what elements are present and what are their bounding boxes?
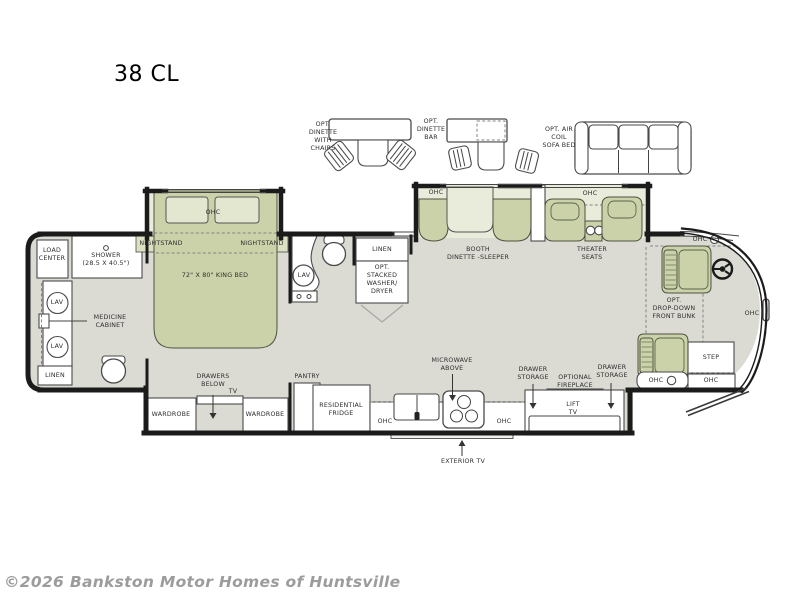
pantry-label: PANTRY: [294, 373, 319, 381]
load-center-label: LOAD CENTER: [39, 247, 66, 263]
lift-tv-label: LIFT TV: [566, 401, 580, 417]
shower-label: SHOWER (28.5 X 40.5"): [83, 252, 130, 268]
opt-dinette-bar-label: OPT. DINETTE BAR: [417, 118, 445, 142]
opt-sofa-label: OPT. AIR COIL SOFA BED: [542, 126, 575, 150]
medicine-cabinet-label: MEDICINE CABINET: [94, 314, 127, 330]
passenger-seat: [638, 334, 688, 377]
bar-chair-left: [448, 145, 472, 171]
drawer-storage-label-right: DRAWER STORAGE: [596, 364, 627, 380]
ohc-label-front-bottom-left: OHC: [649, 377, 664, 385]
slide-divider: [531, 185, 545, 241]
cupholder-1: [586, 226, 595, 235]
floorplan-page: 38 CL OPT. DINETTE WITH CHAIRS OPT. DINE…: [0, 0, 800, 600]
ohc-label-dinette-1: OHC: [429, 189, 444, 197]
microwave-label: MICROWAVE ABOVE: [432, 357, 473, 373]
sofa-back-cushion-2: [619, 125, 648, 149]
sofa-back-cushion-1: [589, 125, 618, 149]
booth-table: [447, 187, 493, 232]
wardrobe-label-left: WARDROBE: [152, 411, 191, 419]
linen-label-mid: LINEN: [372, 246, 392, 254]
bar-chair-right: [515, 148, 540, 174]
ohc-light-bottom: [667, 376, 675, 384]
lav-label-2: LAV: [51, 343, 63, 351]
drop-down-bunk-label: OPT. DROP-DOWN FRONT BUNK: [652, 297, 695, 321]
opt-dinette-chairs-label: OPT. DINETTE WITH CHAIRS: [309, 121, 337, 153]
bar-pedestal: [478, 142, 504, 170]
fridge-label: RESIDENTIAL FRIDGE: [319, 402, 362, 418]
toilet-rear: [102, 359, 126, 383]
booth-dinette-label: BOOTH DINETTE -SLEEPER: [447, 246, 509, 262]
theater-seat-right: [602, 197, 642, 241]
nightstand-label-right: NIGHTSTAND: [240, 240, 283, 248]
page-title: 38 CL: [114, 62, 179, 87]
ohc-label-bed: OHC: [206, 209, 221, 217]
lift-tv-screen: [529, 416, 620, 433]
opt-sofa-drawing: [575, 122, 691, 174]
driver-seat: [662, 246, 711, 293]
medicine-cabinet-box: [39, 314, 49, 328]
toilet-mid: [323, 243, 346, 266]
exterior-tv-label: EXTERIOR TV: [441, 458, 485, 466]
midbath-vanity-base: [292, 291, 317, 302]
ohc-label-front-top: OHC: [693, 236, 708, 244]
tv-cabinet-bedroom: [197, 396, 243, 404]
pillow-left: [166, 197, 208, 223]
king-bed-label: 72" X 80" KING BED: [182, 272, 248, 280]
step-label: STEP: [703, 354, 719, 362]
sofa-back-cushion-3: [649, 125, 678, 149]
sofa-arm-right: [678, 122, 691, 174]
theater-seats-label: THEATER SEATS: [577, 246, 607, 262]
tv-label: TV: [229, 388, 238, 396]
lav-label-3: LAV: [298, 272, 310, 280]
watermark: ©2026 Bankston Motor Homes of Huntsville: [4, 573, 400, 591]
booth-bench-left: [419, 199, 448, 241]
lav-label-1: LAV: [51, 299, 63, 307]
faucet: [415, 412, 420, 420]
sofa-arm-left: [575, 122, 588, 174]
fireplace-label: OPTIONAL FIREPLACE: [557, 374, 593, 390]
pillow-right: [215, 197, 259, 223]
ohc-label-windshield: OHC: [745, 310, 760, 318]
ohc-label-front-bottom-right: OHC: [704, 377, 719, 385]
booth-bench-right: [493, 199, 531, 241]
nightstand-label-left: NIGHTSTAND: [139, 240, 182, 248]
drawers-below-label: DRAWERS BELOW: [197, 373, 230, 389]
linen-label-rear: LINEN: [45, 372, 65, 380]
ohc-label-dinette-2: OHC: [583, 190, 598, 198]
drawer-storage-label-left: DRAWER STORAGE: [517, 366, 548, 382]
washer-dryer-label: OPT. STACKED WASHER/ DRYER: [367, 264, 398, 296]
ohc-label-kitchen-right: OHC: [497, 418, 512, 426]
range-cooktop: [443, 391, 484, 428]
opt-dinette-bar-drawing: [447, 119, 539, 174]
dinette-table: [329, 119, 411, 140]
dinette-chair-right: [385, 139, 417, 171]
wardrobe-label-right: WARDROBE: [246, 411, 285, 419]
dinette-pedestal: [358, 140, 388, 166]
ohc-label-kitchen-left: OHC: [378, 418, 393, 426]
